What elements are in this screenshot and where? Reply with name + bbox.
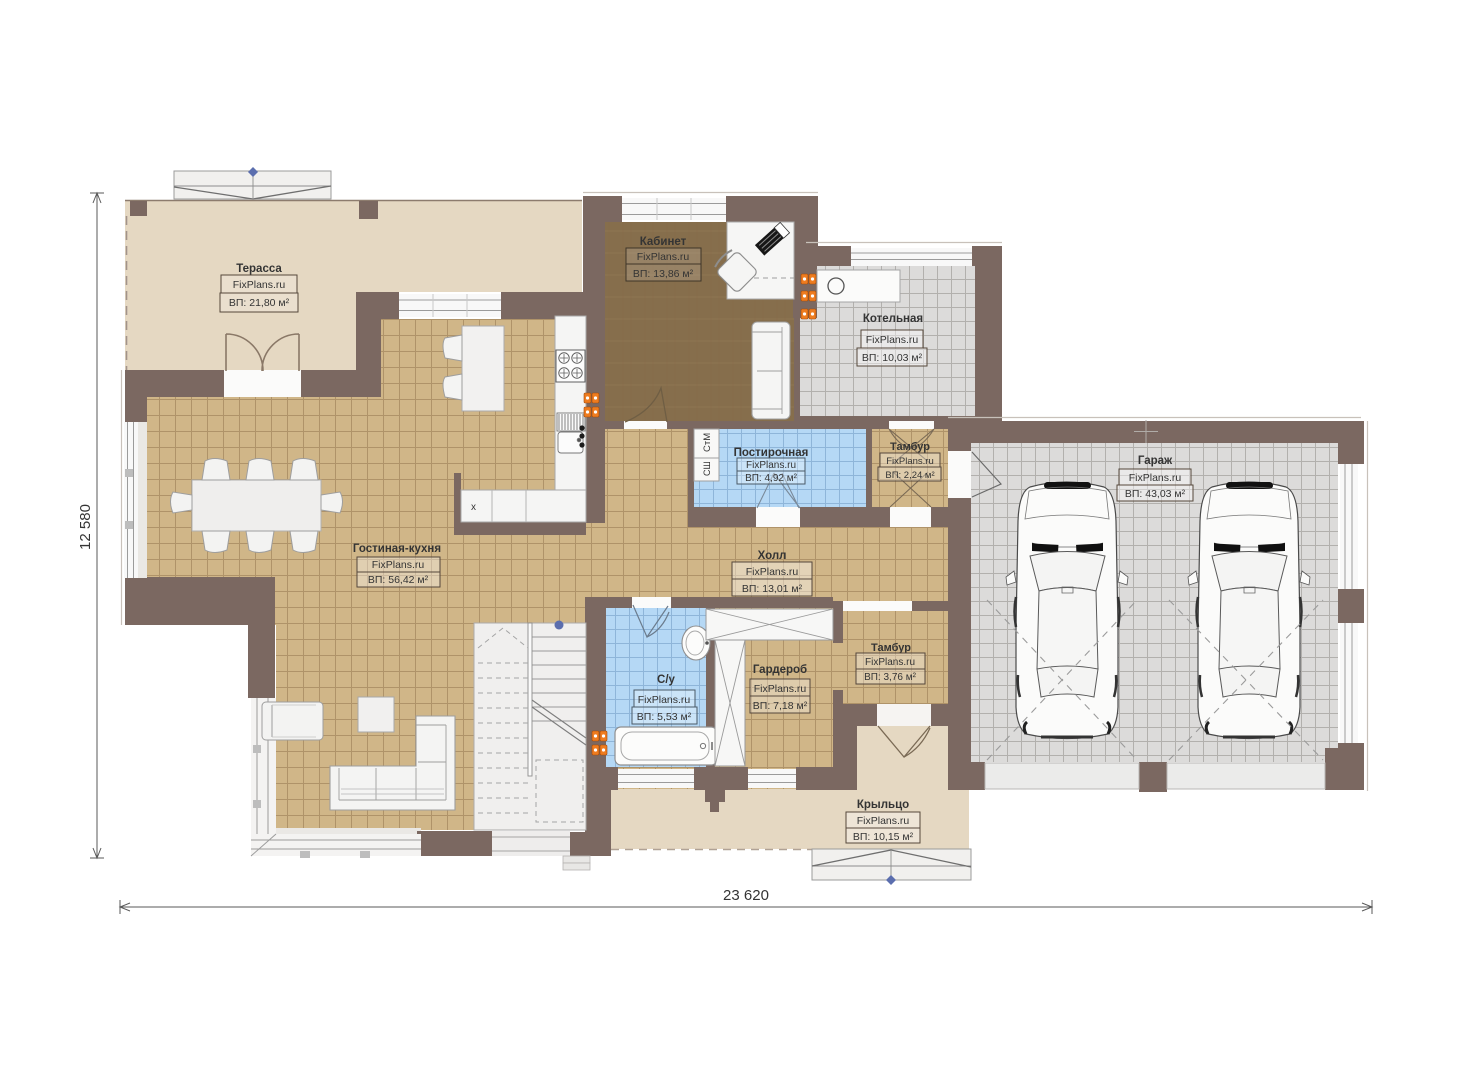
svg-text:ВП: 13,86 м²: ВП: 13,86 м² xyxy=(633,268,694,280)
svg-text:СтМ: СтМ xyxy=(702,433,713,452)
svg-text:ВП: 2,24 м²: ВП: 2,24 м² xyxy=(885,470,934,481)
svg-text:ВП: 43,03 м²: ВП: 43,03 м² xyxy=(1125,488,1186,500)
svg-text:FixPlans.ru: FixPlans.ru xyxy=(637,251,690,263)
svg-text:С/у: С/у xyxy=(657,674,676,686)
svg-text:Терасса: Терасса xyxy=(236,263,282,275)
svg-text:ВП: 5,53 м²: ВП: 5,53 м² xyxy=(637,711,692,723)
svg-text:Гардероб: Гардероб xyxy=(753,664,807,676)
svg-text:ВП: 13,01 м²: ВП: 13,01 м² xyxy=(742,583,803,595)
svg-text:х: х xyxy=(471,502,476,513)
svg-text:FixPlans.ru: FixPlans.ru xyxy=(1129,472,1182,484)
svg-text:СШ: СШ xyxy=(702,461,712,476)
svg-text:FixPlans.ru: FixPlans.ru xyxy=(746,460,796,471)
svg-text:ВП: 10,15 м²: ВП: 10,15 м² xyxy=(853,831,914,843)
svg-text:ВП: 4,92 м²: ВП: 4,92 м² xyxy=(745,473,798,484)
svg-text:Гараж: Гараж xyxy=(1138,455,1173,467)
svg-text:ВП: 7,18 м²: ВП: 7,18 м² xyxy=(753,700,808,712)
svg-text:FixPlans.ru: FixPlans.ru xyxy=(754,683,807,695)
svg-text:Крыльцо: Крыльцо xyxy=(857,799,909,811)
svg-text:ВП: 21,80 м²: ВП: 21,80 м² xyxy=(229,297,290,309)
svg-text:Холл: Холл xyxy=(758,550,787,562)
svg-text:FixPlans.ru: FixPlans.ru xyxy=(233,279,286,291)
svg-text:FixPlans.ru: FixPlans.ru xyxy=(886,456,934,467)
svg-text:23 620: 23 620 xyxy=(723,887,769,904)
svg-text:FixPlans.ru: FixPlans.ru xyxy=(638,694,691,706)
svg-text:Постирочная: Постирочная xyxy=(734,447,809,459)
svg-text:FixPlans.ru: FixPlans.ru xyxy=(372,559,425,571)
svg-text:Кабинет: Кабинет xyxy=(640,236,687,248)
svg-text:Тамбур: Тамбур xyxy=(871,642,911,654)
svg-text:12 580: 12 580 xyxy=(77,504,94,550)
svg-text:ВП: 56,42 м²: ВП: 56,42 м² xyxy=(368,574,429,586)
svg-text:Гостиная-кухня: Гостиная-кухня xyxy=(353,543,441,555)
svg-text:ВП: 3,76 м²: ВП: 3,76 м² xyxy=(864,672,917,683)
svg-text:Тамбур: Тамбур xyxy=(890,441,930,453)
svg-text:ВП: 10,03 м²: ВП: 10,03 м² xyxy=(862,352,923,364)
svg-text:FixPlans.ru: FixPlans.ru xyxy=(866,334,919,346)
svg-text:FixPlans.ru: FixPlans.ru xyxy=(865,657,915,668)
svg-text:FixPlans.ru: FixPlans.ru xyxy=(746,566,799,578)
svg-text:Котельная: Котельная xyxy=(863,313,923,325)
svg-text:FixPlans.ru: FixPlans.ru xyxy=(857,815,910,827)
